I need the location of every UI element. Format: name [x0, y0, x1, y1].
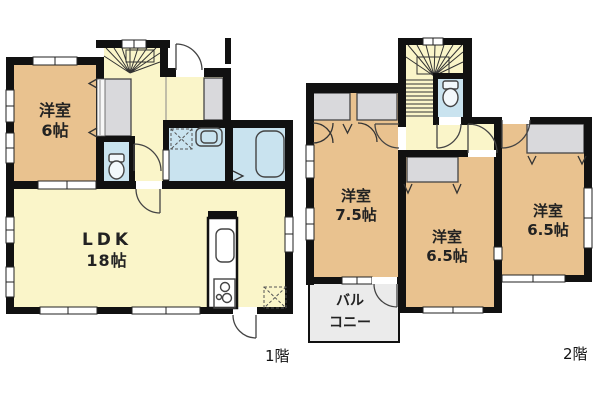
floorplan-canvas: 洋室 6帖 LDK 18帖 洋室 7.5帖 洋室 6.5帖 洋室 6.5帖 バル…	[0, 0, 600, 400]
floor2-label: 2階	[563, 343, 588, 364]
floor1-room-fills	[14, 48, 285, 307]
closet-2f-west75-b	[357, 93, 397, 120]
balcony-name-line1: バル	[329, 291, 371, 313]
closet-2f-west75-a	[312, 93, 350, 120]
room-label-west6: 洋室 6帖	[39, 101, 71, 141]
room-name: 洋室	[335, 187, 377, 206]
room-label-ldk: LDK 18帖	[82, 230, 132, 271]
room-label-west65b: 洋室 6.5帖	[527, 202, 569, 240]
room-label-west65a: 洋室 6.5帖	[426, 228, 468, 266]
bathroom-fill	[233, 128, 285, 181]
room-label-balcony: バル コニー	[329, 291, 371, 334]
kitchen-counter	[208, 218, 237, 308]
room-name: 洋室	[39, 101, 71, 121]
room-size: 6帖	[39, 121, 71, 141]
room-label-west75: 洋室 7.5帖	[335, 187, 377, 225]
room-name: 洋室	[527, 202, 569, 221]
toilet1-icon	[109, 154, 124, 179]
toilet2-icon	[443, 81, 458, 107]
closet-2f-west65a	[407, 157, 458, 182]
room-name: 洋室	[426, 228, 468, 247]
floorplan-drawing	[0, 0, 600, 400]
room-size: 6.5帖	[527, 221, 569, 240]
closet-1f	[104, 79, 131, 136]
room-size: 18帖	[82, 251, 132, 271]
room-name: LDK	[82, 230, 132, 251]
back-door-arc	[233, 315, 256, 338]
shoe-cabinet	[204, 78, 223, 120]
room-size: 6.5帖	[426, 247, 468, 266]
floor1-label: 1階	[265, 345, 290, 366]
entrance-door-arc	[176, 44, 202, 70]
room-size: 7.5帖	[335, 206, 377, 225]
closet-1f-door-face	[97, 79, 105, 136]
balcony-name-line2: コニー	[329, 313, 371, 335]
closet-2f-west65b	[527, 124, 584, 153]
room-ldk-fill	[14, 189, 285, 307]
